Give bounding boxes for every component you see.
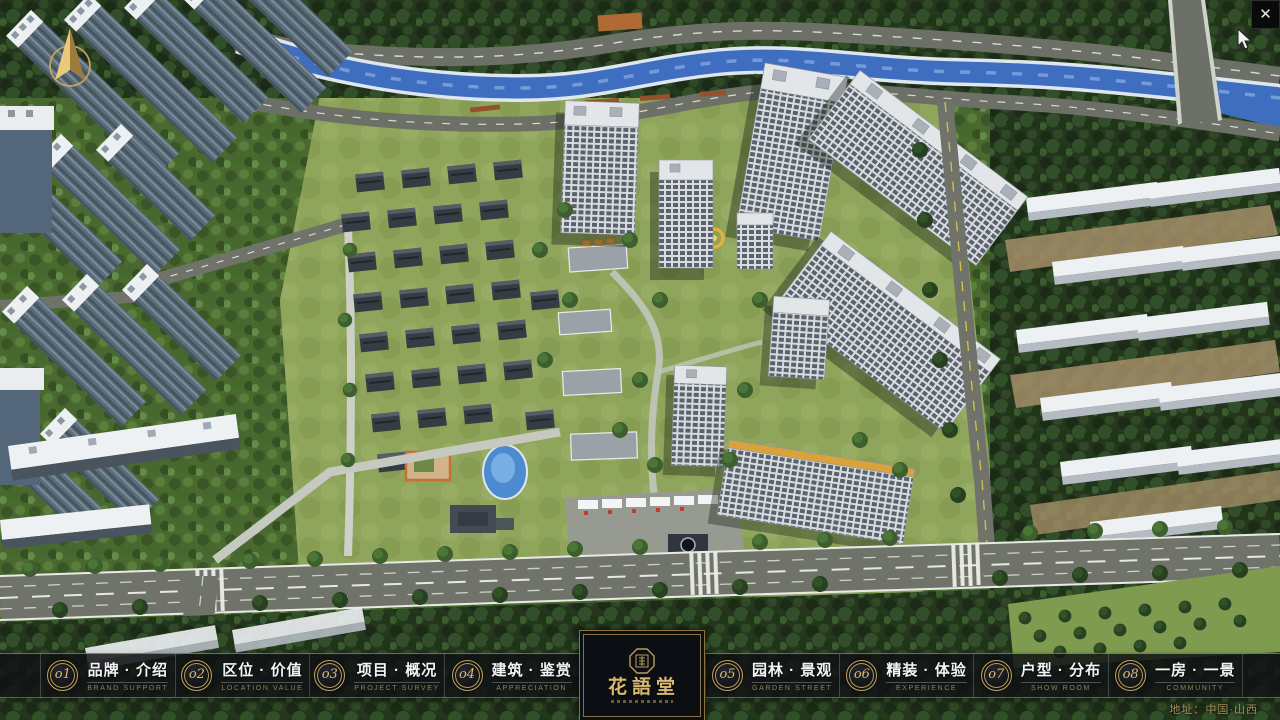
nav-badge-o3: o3 xyxy=(314,660,345,691)
nav-badge-o2: o2 xyxy=(181,660,212,691)
address-text: 地址：中国·山西 xyxy=(1169,701,1258,717)
nav-sublabel: SHOW ROOM xyxy=(1031,685,1091,692)
nav-divider xyxy=(221,682,303,683)
presentation-screen: ✕ o1 品牌 · 介绍 BRAND SUPPORT o2 区位 · 价值 LO… xyxy=(0,0,1280,720)
nav-label: 建筑 · 鉴赏 xyxy=(492,659,572,680)
nav-item-interior-experience[interactable]: o6 精装 · 体验 EXPERIENCE xyxy=(839,654,973,697)
nav-divider xyxy=(492,682,572,683)
nav-divider xyxy=(354,682,440,683)
nav-sublabel: GARDEN STREET xyxy=(752,685,832,692)
nav-item-one-room-one-view[interactable]: o8 一房 · 一景 COMMUNITY xyxy=(1108,654,1243,697)
nav-item-location-value[interactable]: o2 区位 · 价值 LOCATION VALUE xyxy=(175,654,310,697)
nav-sublabel: EXPERIENCE xyxy=(896,685,957,692)
nav-label: 品牌 · 介绍 xyxy=(88,659,168,680)
nav-sublabel: BRAND SUPPORT xyxy=(87,685,168,692)
logo-title: 花語堂 xyxy=(603,677,680,698)
nav-label: 园林 · 景观 xyxy=(752,659,832,680)
nav-sublabel: APPRECIATION xyxy=(496,685,567,692)
nav-divider xyxy=(1155,682,1235,683)
nav-label: 一房 · 一景 xyxy=(1155,659,1235,680)
aerial-masterplan-render xyxy=(0,0,1280,720)
nav-badge-o7: o7 xyxy=(981,660,1012,691)
nav-sublabel: PROJECT SURVEY xyxy=(354,685,440,692)
nav-divider xyxy=(87,682,168,683)
nav-item-brand-intro[interactable]: o1 品牌 · 介绍 BRAND SUPPORT xyxy=(40,654,175,697)
nav-badge-o5: o5 xyxy=(712,660,743,691)
nav-label: 项目 · 概况 xyxy=(357,659,437,680)
nav-item-architecture[interactable]: o4 建筑 · 鉴赏 APPRECIATION xyxy=(444,654,579,697)
close-button[interactable]: ✕ xyxy=(1251,0,1280,29)
nav-sublabel: COMMUNITY xyxy=(1167,685,1225,692)
nav-badge-o8: o8 xyxy=(1115,660,1146,691)
nav-label: 精装 · 体验 xyxy=(886,659,966,680)
nav-right-group: o5 园林 · 景观 GARDEN STREET o6 精装 · 体验 EXPE… xyxy=(705,654,1244,697)
nav-divider xyxy=(1021,682,1101,683)
bottom-navigation-bar: o1 品牌 · 介绍 BRAND SUPPORT o2 区位 · 价值 LOCA… xyxy=(0,653,1280,698)
nav-badge-o4: o4 xyxy=(452,660,483,691)
nav-item-project-survey[interactable]: o3 项目 · 概况 PROJECT SURVEY xyxy=(309,654,444,697)
nav-label: 区位 · 价值 xyxy=(222,659,302,680)
nav-badge-o6: o6 xyxy=(846,660,877,691)
nav-divider xyxy=(886,682,966,683)
nav-left-group: o1 品牌 · 介绍 BRAND SUPPORT o2 区位 · 价值 LOCA… xyxy=(40,654,579,697)
nav-divider xyxy=(752,682,832,683)
nav-item-garden-landscape[interactable]: o5 园林 · 景观 GARDEN STREET xyxy=(705,654,839,697)
logo-huayutang[interactable]: 花語堂 xyxy=(579,630,705,720)
logo-subtext xyxy=(611,700,673,703)
nav-sublabel: LOCATION VALUE xyxy=(221,685,303,692)
nav-item-floorplan-distribution[interactable]: o7 户型 · 分布 SHOW ROOM xyxy=(973,654,1107,697)
logo-seal-icon xyxy=(629,648,655,674)
nav-label: 户型 · 分布 xyxy=(1021,659,1101,680)
nav-badge-o1: o1 xyxy=(47,660,78,691)
